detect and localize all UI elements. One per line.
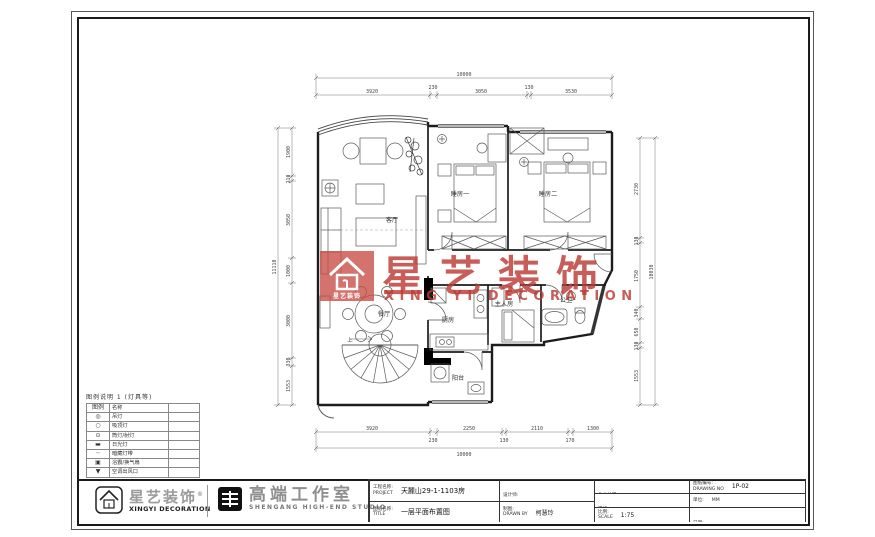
dim-label: 230: [428, 438, 437, 444]
designer-label: 设计师: DESIGNER BY: [503, 493, 534, 501]
dim-label: 3920: [366, 426, 378, 432]
legend-table: 图例说明 1 (灯具等) 图例 名称 ◎ 吊灯 ○ 吸顶灯 ⊙ 筒灯/射灯 ▬ …: [86, 392, 200, 478]
dim-label: 1553: [634, 370, 640, 382]
dim-label: 2250: [463, 426, 475, 432]
dim-top-total: 10000: [456, 72, 471, 78]
legend-row: ▣ 浴霸/换气扇: [87, 459, 200, 468]
dining-table: [343, 287, 406, 342]
titleblock-table: 工程名称: PROJECT 天麓山29-1-1103房 图纸名称: TITLE …: [368, 479, 806, 522]
ac-vent-icon: ▼: [87, 468, 110, 477]
bedroom2-furniture: [510, 128, 606, 249]
project-value: 天麓山29-1-1103房: [401, 487, 465, 495]
checked-cell: 审核: CHECKED: [594, 493, 689, 507]
dim-label: 3530: [565, 89, 577, 95]
dim-label: 1750: [634, 270, 640, 282]
scale-value: 1:75: [621, 512, 634, 519]
date-label: 日期: DATE: [693, 521, 705, 522]
unit-value: MM: [712, 498, 720, 503]
tube-lamp-icon: ▬: [87, 440, 110, 449]
exhaust-fan-icon: ▣: [87, 459, 110, 468]
dim-label: 650: [634, 327, 640, 336]
client-approved-cell: 业主认可: CLIENT APPROVED: [594, 479, 689, 493]
room-label-master: 主人房: [495, 300, 514, 308]
drawn-label: 制图: DRAWN BY: [503, 507, 528, 517]
dim-label: 130: [634, 341, 640, 350]
legend-row: ▬ 日光灯: [87, 440, 200, 449]
room-labels: 客厅 睡房一 睡房二 餐厅 厨房 主人房 公卫 阳台 上: [347, 190, 572, 382]
studio-seal-icon: [217, 486, 243, 512]
windows: [432, 125, 606, 404]
living-sofa: [321, 208, 341, 274]
dim-label: 3000: [286, 315, 292, 327]
legend-row: ◎ 吊灯: [87, 413, 200, 422]
titleblock: 星艺装饰® XINGYI DECORATION 高端工作室 SHENGANG H…: [79, 481, 805, 522]
dim-label: 1900: [286, 146, 292, 158]
room-label-bedroom1: 睡房一: [451, 190, 470, 198]
legend-name: 吸顶灯: [110, 422, 169, 431]
living-table-chairs: [343, 138, 403, 164]
scale-cell: 比例: SCALE 1:75: [594, 507, 689, 522]
drawing-no-value: 1P-02: [732, 483, 749, 490]
legend-name: 空调出风口: [110, 468, 169, 477]
dim-label: 210: [286, 174, 292, 183]
drawing-sheet: 10000 3920 230 3050 130 3530 3920 230 22…: [0, 0, 875, 537]
dim-left-total: 11110: [272, 259, 278, 274]
dim-label: 3050: [475, 89, 487, 95]
title-cell: 图纸名称: TITLE 一层平面布置图: [369, 501, 499, 522]
dining-cabinet: [320, 296, 330, 328]
unit-label: 单位:: [693, 498, 704, 503]
logo-divider: [207, 485, 208, 517]
dim-label: 1553: [286, 380, 292, 392]
legend-name: 浴霸/换气扇: [110, 459, 169, 468]
project-cell: 工程名称: PROJECT 天麓山29-1-1103房: [369, 479, 499, 501]
dim-label: 3050: [286, 214, 292, 226]
cove-light-icon: ┄: [87, 449, 110, 458]
logo1-brand-en: XINGYI DECORATION: [129, 505, 211, 513]
dim-label: 170: [565, 438, 574, 444]
doors: [428, 232, 612, 370]
legend-row: ○ 吸顶灯: [87, 422, 200, 431]
company-logo-studio: 高端工作室 SHENGANG HIGH-END STUDIO: [217, 486, 387, 512]
logo1-brand-cn: 星艺装饰: [129, 488, 197, 506]
room-label-kitchen: 厨房: [442, 316, 454, 324]
legend-row: ⊙ 筒灯/射灯: [87, 431, 200, 440]
room-label-bath: 公卫: [560, 297, 572, 304]
dim-label: 1000: [286, 265, 292, 277]
registered-mark: ®: [197, 491, 205, 498]
room-label-dining: 餐厅: [378, 310, 390, 318]
project-label: 工程名称: PROJECT: [373, 485, 393, 495]
legend-name: 日光灯: [110, 440, 169, 449]
dim-label: 2730: [634, 183, 640, 195]
living-bay-window: [318, 116, 428, 135]
legend-col-name: 名称: [110, 404, 169, 413]
logo2-brand-en: SHENGANG HIGH-END STUDIO: [249, 504, 387, 511]
legend-name: 吊灯: [110, 413, 169, 422]
drawing-no-cell: 图纸编号: DRAWING NO 1P-02: [689, 479, 806, 493]
company-logo-xingyi: 星艺装饰® XINGYI DECORATION: [95, 486, 211, 514]
dim-right-total: 10030: [649, 264, 655, 279]
drawn-value: 柯慧玲: [536, 508, 554, 517]
living-armchair: [356, 184, 384, 204]
kitchen-fixtures: [430, 288, 488, 350]
bedroom1-furniture: [438, 134, 507, 249]
dim-label: 130: [634, 236, 640, 245]
dim-label: 130: [499, 438, 508, 444]
dim-label: 2110: [531, 426, 543, 432]
room-label-balcony: 阳台: [452, 374, 464, 382]
dim-label: 340: [634, 308, 640, 317]
master-furniture: [492, 288, 534, 342]
dim-label: 230: [428, 85, 437, 91]
dim-label: 1300: [587, 426, 599, 432]
spot-lamp-icon: ⊙: [87, 431, 110, 440]
xingyi-house-icon: [95, 486, 123, 514]
plant: [405, 137, 423, 175]
legend-row: ┄ 暗藏灯带: [87, 449, 200, 458]
dim-label: 3920: [366, 89, 378, 95]
drawing-no-label: 图纸编号: DRAWING NO: [693, 481, 724, 491]
date-cell: 日期: DATE: [689, 507, 806, 522]
ceiling-lamp-icon: ○: [87, 422, 110, 431]
logo2-brand-cn: 高端工作室: [249, 487, 387, 504]
stair-up-label: 上: [347, 336, 353, 344]
pendant-lamp-icon: ◎: [87, 413, 110, 422]
living-side-table-lamp: [322, 180, 338, 196]
dim-bottom-total: 10000: [456, 452, 471, 458]
legend-name: 暗藏灯带: [110, 449, 169, 458]
legend-col-symbol: 图例: [87, 404, 110, 413]
dim-label: 330: [286, 357, 292, 366]
scale-label: 比例: SCALE: [598, 510, 613, 520]
unit-cell: 单位: MM: [689, 493, 806, 507]
room-label-bedroom2: 睡房二: [539, 190, 558, 198]
legend-row: ▼ 空调出风口: [87, 468, 200, 477]
title-label: 图纸名称: TITLE: [373, 507, 393, 517]
title-value: 一层平面布置图: [401, 508, 450, 516]
dim-label: 130: [524, 85, 533, 91]
legend-title: 图例说明 1 (灯具等): [86, 392, 200, 401]
designer-cell: 设计师: DESIGNER BY: [499, 479, 594, 501]
legend-name: 筒灯/射灯: [110, 431, 169, 440]
room-label-living: 客厅: [386, 216, 398, 224]
drawn-cell: 制图: DRAWN BY 柯慧玲: [499, 501, 594, 522]
